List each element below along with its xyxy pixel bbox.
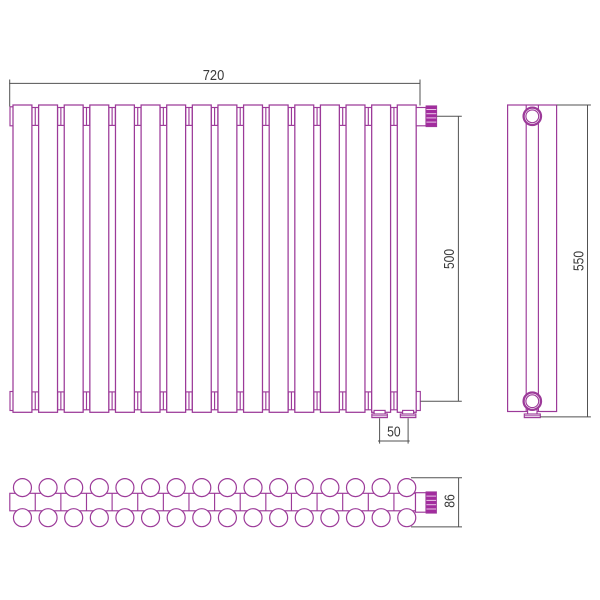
svg-text:500: 500 <box>442 249 458 269</box>
svg-text:550: 550 <box>572 251 588 271</box>
svg-text:50: 50 <box>387 424 401 440</box>
svg-text:86: 86 <box>443 494 459 508</box>
svg-text:720: 720 <box>203 68 225 84</box>
